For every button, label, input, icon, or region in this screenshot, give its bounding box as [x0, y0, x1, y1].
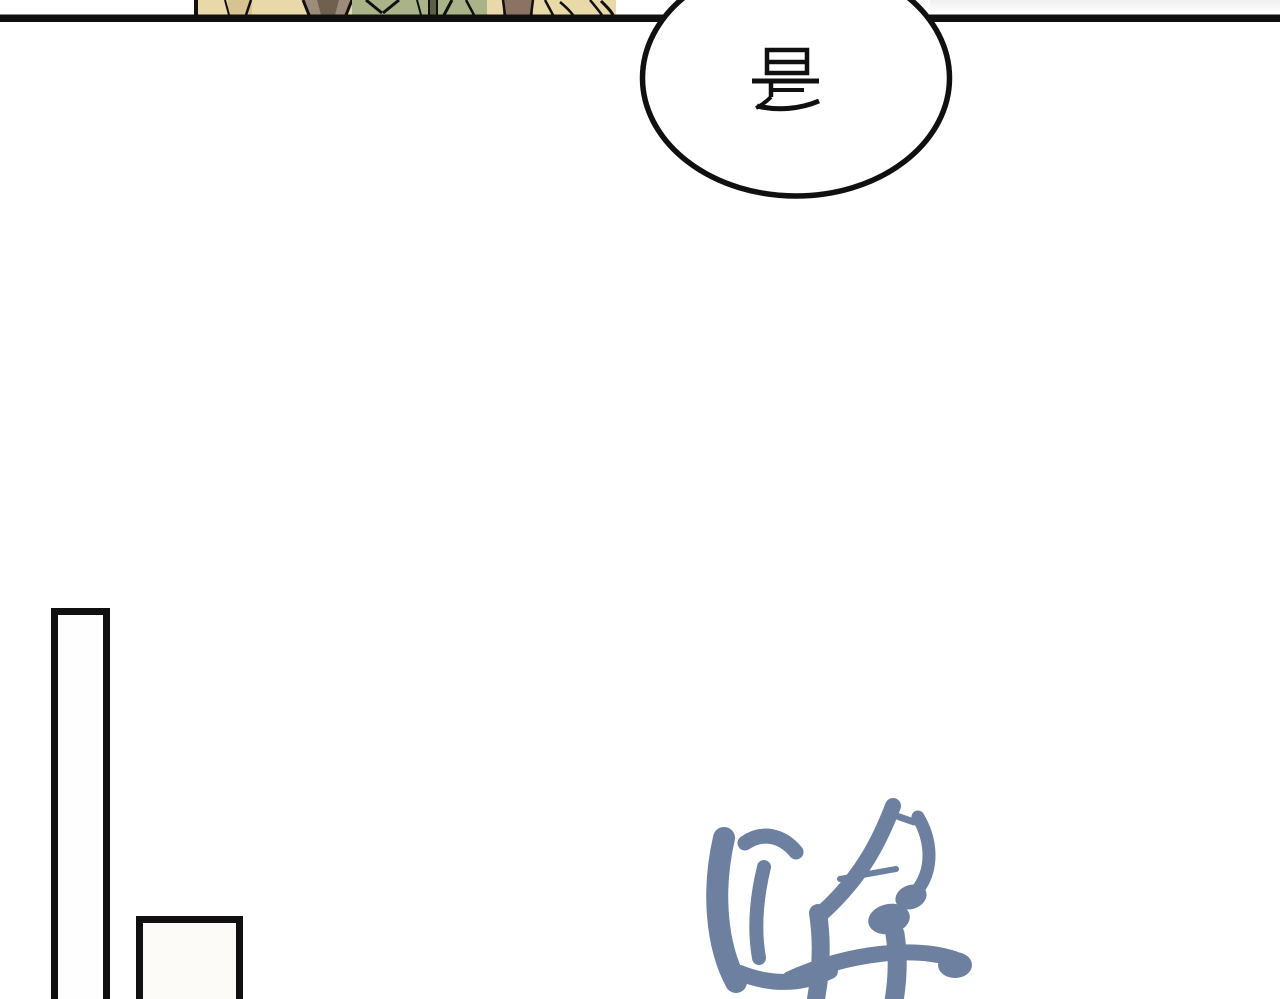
sfx-glyph: [690, 795, 990, 999]
panel-artwork: [194, 0, 616, 15]
sfx-brush-strokes: [717, 806, 972, 999]
comic-page: 是 哗: [0, 0, 1280, 999]
speech-bubble-outline: [643, 0, 950, 196]
panel-left-edge: [194, 0, 198, 15]
speech-bubble: [620, 0, 980, 210]
panel-frame-tall: [51, 608, 110, 999]
panel-frame-small: [136, 916, 243, 999]
right-panel-bottom-fade: [930, 0, 1280, 15]
